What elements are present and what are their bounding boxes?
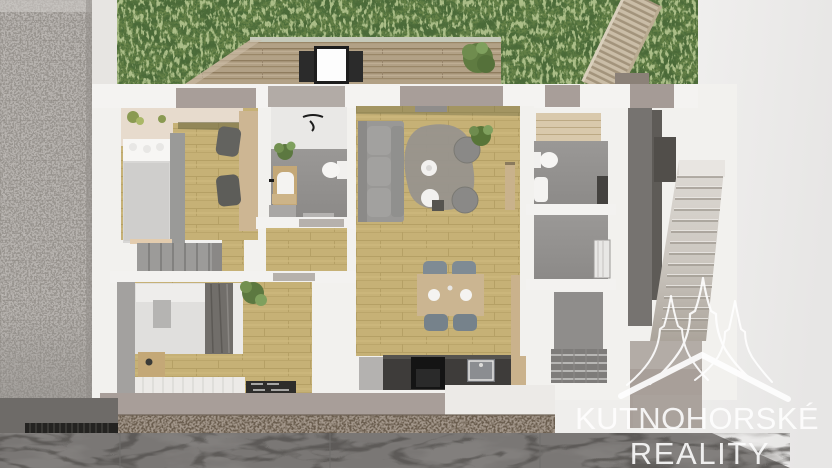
svg-text:REALITY: REALITY (630, 436, 770, 468)
svg-text:KUTNOHORSKÉ: KUTNOHORSKÉ (575, 401, 819, 436)
